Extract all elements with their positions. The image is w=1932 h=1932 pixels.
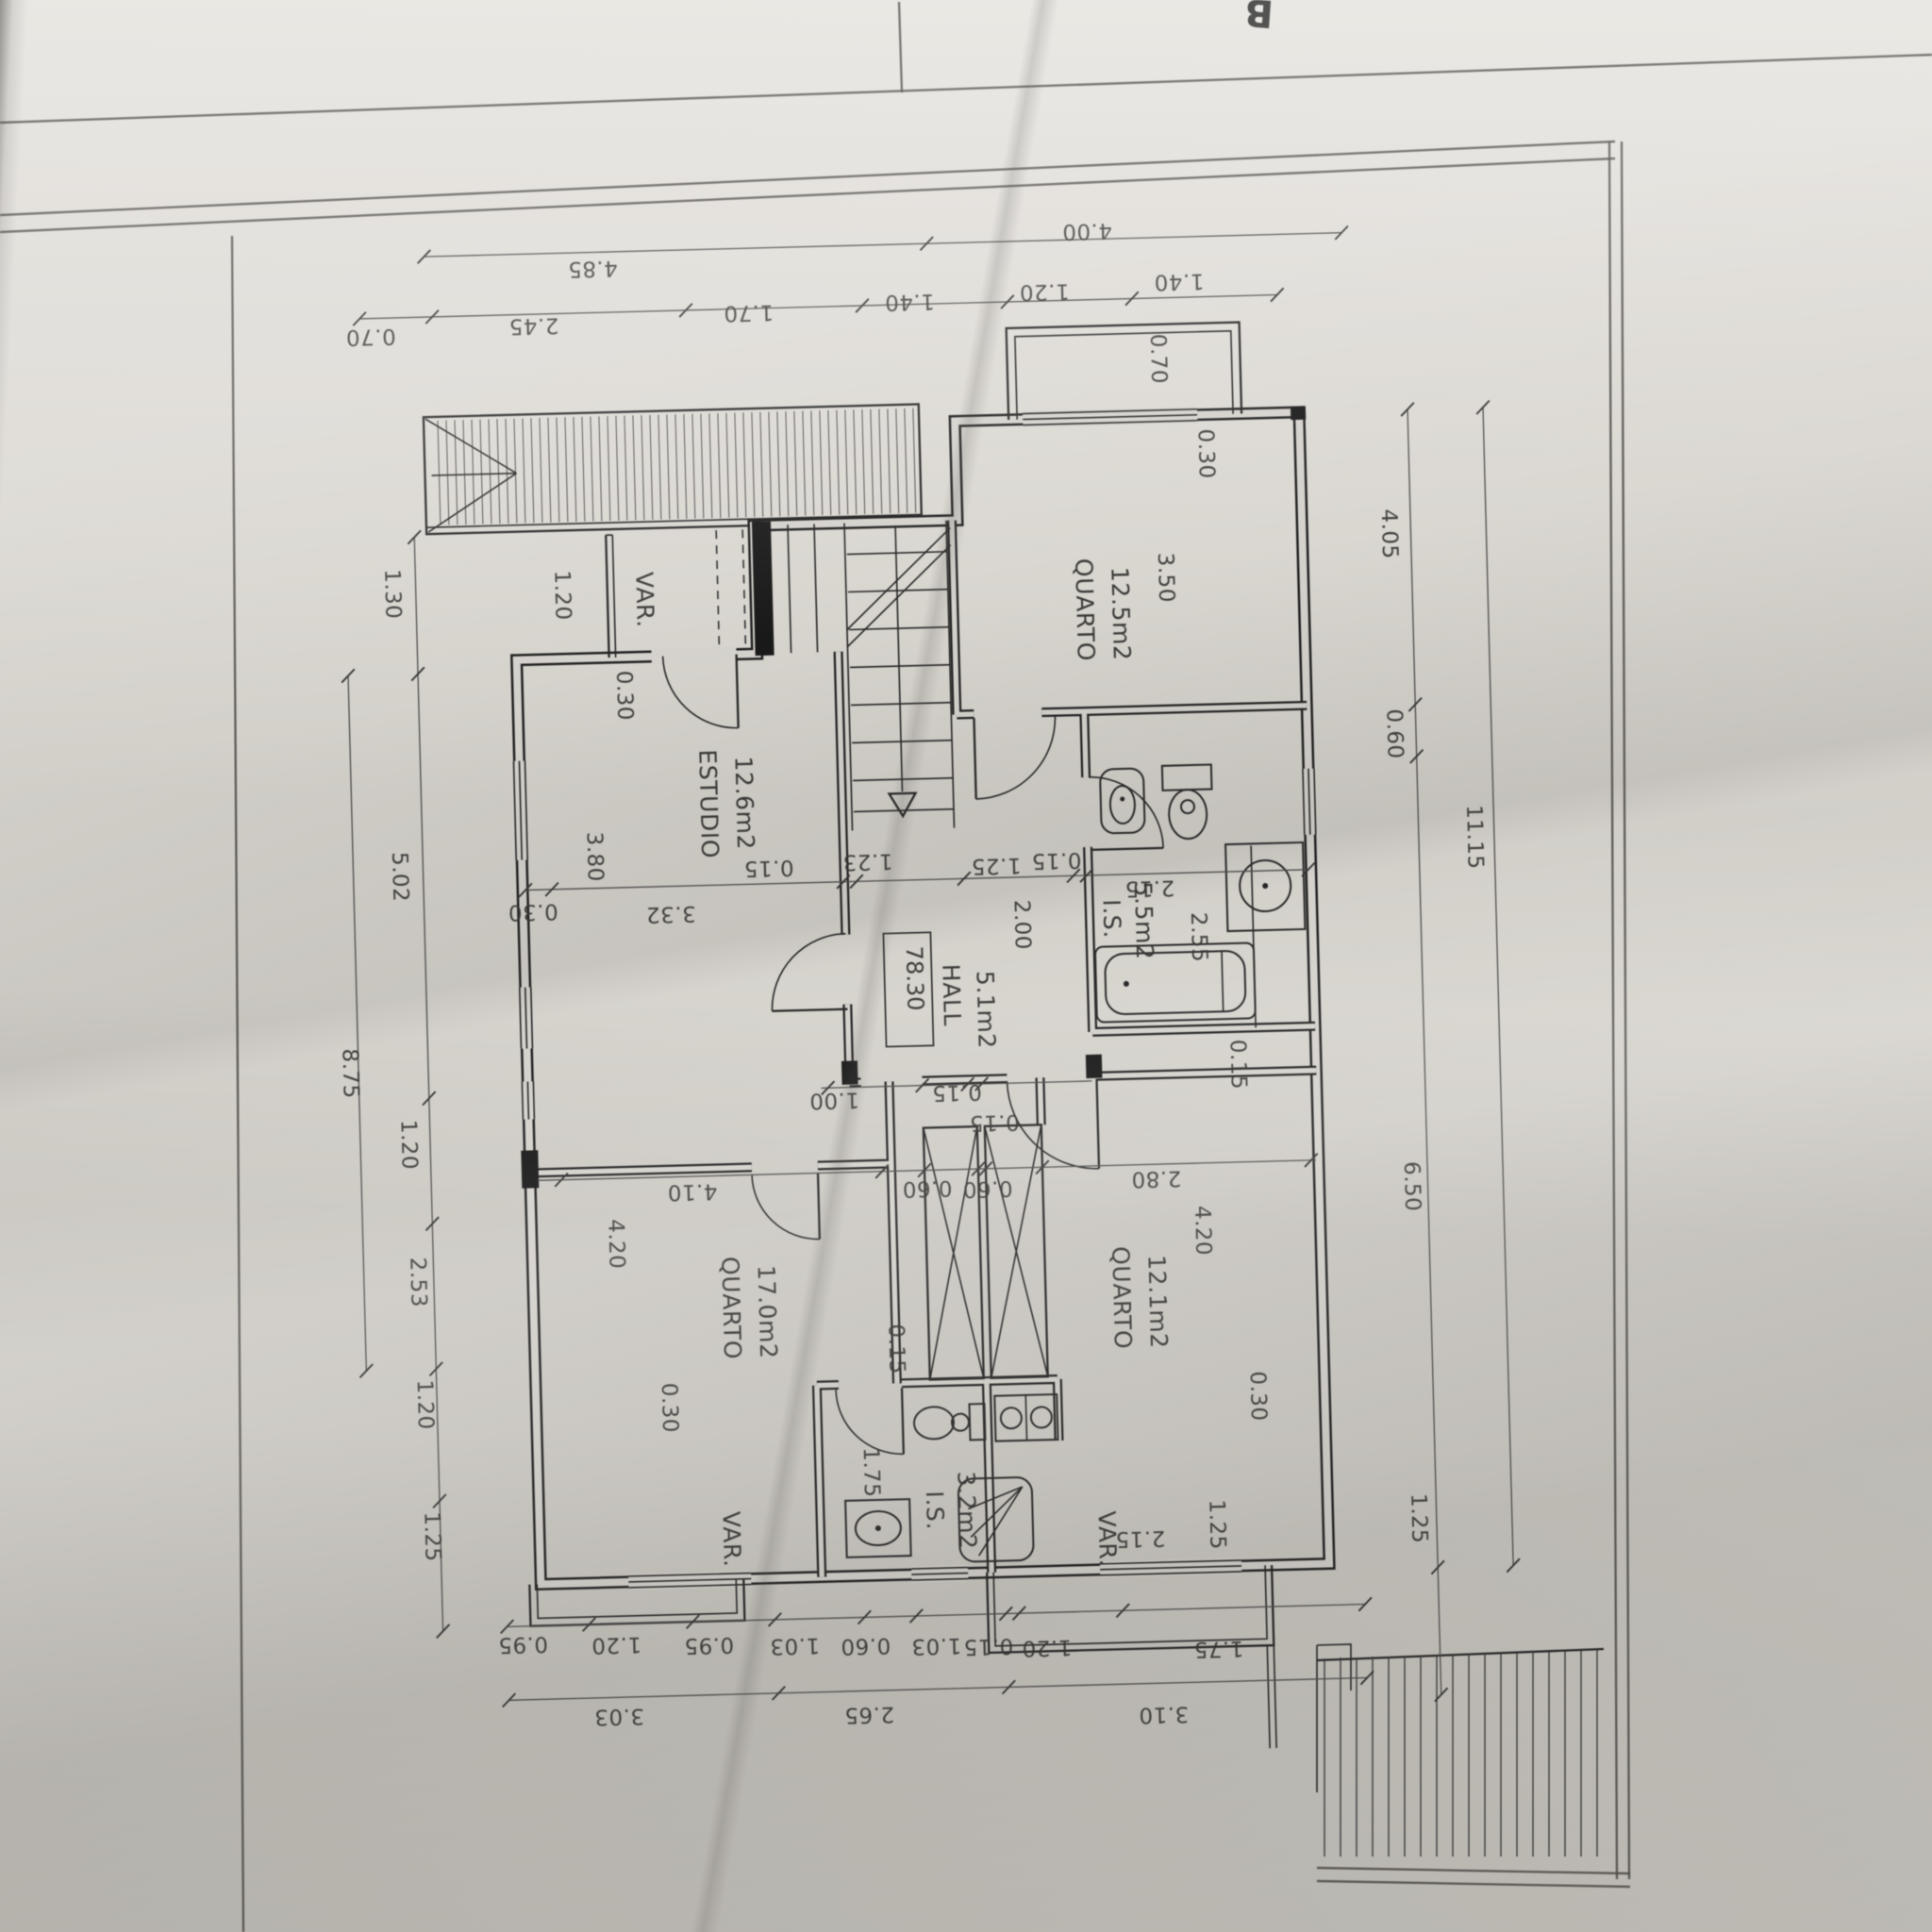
upper-flight-treads (788, 524, 818, 653)
dim-label: 11.15 (1461, 805, 1488, 870)
photographed-floor-plan: B (0, 0, 1932, 1932)
dim-label: 1.23 (842, 848, 893, 874)
wall-poche (752, 522, 774, 656)
dim-label: 2.00 (1009, 899, 1035, 950)
room-label-is-main: I.S. (1098, 899, 1126, 939)
dim-label: 5.02 (387, 852, 412, 903)
adjacent-drawing-hatch (1317, 1644, 1604, 1857)
dim-label: 1.25 (1204, 1499, 1229, 1550)
dim-label: 2.80 (1131, 1165, 1182, 1191)
room-area-quarto-s: 12.1m2 (1142, 1255, 1173, 1349)
dim-label: 1.25 (1406, 1493, 1431, 1544)
dim-label: 0.60 (841, 1633, 891, 1658)
dim-label: 0.15 (963, 1633, 1014, 1658)
level-marker: 78.30 (883, 932, 933, 1046)
toilet (914, 1407, 955, 1440)
dim-label: 3.03 (593, 1704, 644, 1729)
dim-label: 1.75 (1193, 1636, 1244, 1661)
dim-label: 0.30 (611, 670, 637, 721)
room-label-quarto-s: QUARTO (1107, 1246, 1137, 1350)
roof-overhang-dashed (716, 529, 745, 649)
closets (924, 1124, 1048, 1379)
dim-label: 0.30 (657, 1382, 682, 1433)
dim-label: 1.25 (971, 853, 1022, 878)
dim-label: 0.30 (508, 899, 558, 924)
dim-label: 0.60 (902, 1175, 953, 1201)
dim-label: 1.20 (591, 1632, 641, 1657)
dim-label: 2.15 (1115, 1525, 1166, 1551)
balcony-top-left-rail (606, 535, 615, 658)
dim-label: 0.95 (684, 1632, 735, 1657)
dim-label: 1.20 (549, 570, 575, 621)
level-value: 78.30 (901, 945, 929, 1010)
floor-plan-drawing: B (0, 0, 1932, 1932)
dim-label: 0.30 (1193, 428, 1219, 479)
wall-poche (841, 1060, 858, 1084)
dim-label: 6.50 (1399, 1161, 1424, 1212)
roof-hatch (424, 404, 922, 534)
dim-label: 0.60 (1381, 708, 1407, 759)
dim-label: 1.20 (412, 1379, 438, 1430)
room-area-hall: 5.1m2 (971, 970, 1000, 1049)
dim-label: 0.15 (969, 1109, 1020, 1135)
dim-label: 0.15 (743, 855, 794, 880)
room-label-quarto-ne: QUARTO (1070, 558, 1100, 662)
dim-label: 1.30 (379, 569, 405, 620)
dim-label: 4.85 (567, 256, 618, 281)
dim-label: 1.25 (419, 1511, 444, 1562)
bathroom-fixtures (1091, 762, 1307, 1023)
dim-label: 0.15 (1031, 847, 1082, 873)
dim-label: 0.15 (931, 1079, 982, 1105)
dim-label: 2.55 (1186, 912, 1211, 963)
dim-label: 1.20 (395, 1120, 421, 1171)
stair-stringer (895, 525, 902, 791)
dim-label: 3.80 (581, 831, 607, 882)
dim-label: 1.20 (1019, 278, 1070, 304)
dim-label: 1.00 (808, 1087, 859, 1112)
dim-label: 1.70 (724, 299, 774, 325)
toilet (1162, 764, 1212, 790)
room-label-hall: HALL (937, 963, 966, 1026)
dim-label: 0.95 (497, 1631, 548, 1657)
stair-down-arrow (890, 793, 917, 817)
wall-poche (1291, 407, 1306, 420)
wall-poche (521, 1150, 539, 1188)
dim-label: 2.45 (508, 312, 559, 338)
room-label-estudio: ESTUDIO (693, 749, 724, 858)
dim-label: 2.53 (405, 1257, 430, 1307)
corner-mark: B (1243, 0, 1275, 35)
dim-label: 4.10 (667, 1178, 718, 1204)
room-label-var-top: VAR. (630, 572, 659, 628)
room-label-is-small: I.S. (921, 1491, 949, 1530)
dim-label: 3.10 (1139, 1701, 1190, 1726)
dim-label: 1.20 (1022, 1635, 1073, 1660)
dim-label: 3.50 (1153, 552, 1178, 603)
dim-label: 3.32 (645, 901, 696, 926)
dim-label: 1.03 (770, 1633, 821, 1658)
dim-label: 0.15 (883, 1324, 908, 1374)
dim-label: 4.20 (1190, 1206, 1215, 1257)
room-label-quarto-nw: QUARTO (716, 1257, 746, 1360)
wall-poche (1086, 1055, 1103, 1078)
dim-label: 4.05 (1376, 508, 1402, 559)
dim-label: 0.70 (1145, 333, 1171, 384)
dim-label: 1.75 (858, 1447, 884, 1498)
dim-label: 2.15 (1124, 875, 1175, 901)
dim-label: 0.60 (962, 1175, 1013, 1201)
balcony-top-right (1007, 323, 1241, 420)
dim-label: 2.65 (844, 1702, 895, 1727)
dim-label: 1.40 (884, 289, 935, 314)
dim-label: 1.40 (1154, 269, 1205, 294)
room-area-is-small: 3.2m2 (952, 1471, 981, 1550)
room-area-estudio: 12.6m2 (729, 756, 759, 850)
room-area-quarto-ne: 12.5m2 (1106, 567, 1136, 661)
dim-label: 4.00 (1061, 218, 1112, 243)
dim-label: 8.75 (337, 1048, 362, 1099)
dim-label: 0.30 (1245, 1371, 1271, 1422)
dim-label: 0.15 (1224, 1040, 1250, 1091)
room-area-quarto-nw: 17.0m2 (753, 1265, 783, 1359)
dim-label: 0.70 (345, 324, 396, 349)
dim-label: 1.03 (911, 1633, 962, 1658)
room-label-var-bl: VAR. (717, 1511, 746, 1568)
dim-label: 4.20 (603, 1219, 628, 1270)
